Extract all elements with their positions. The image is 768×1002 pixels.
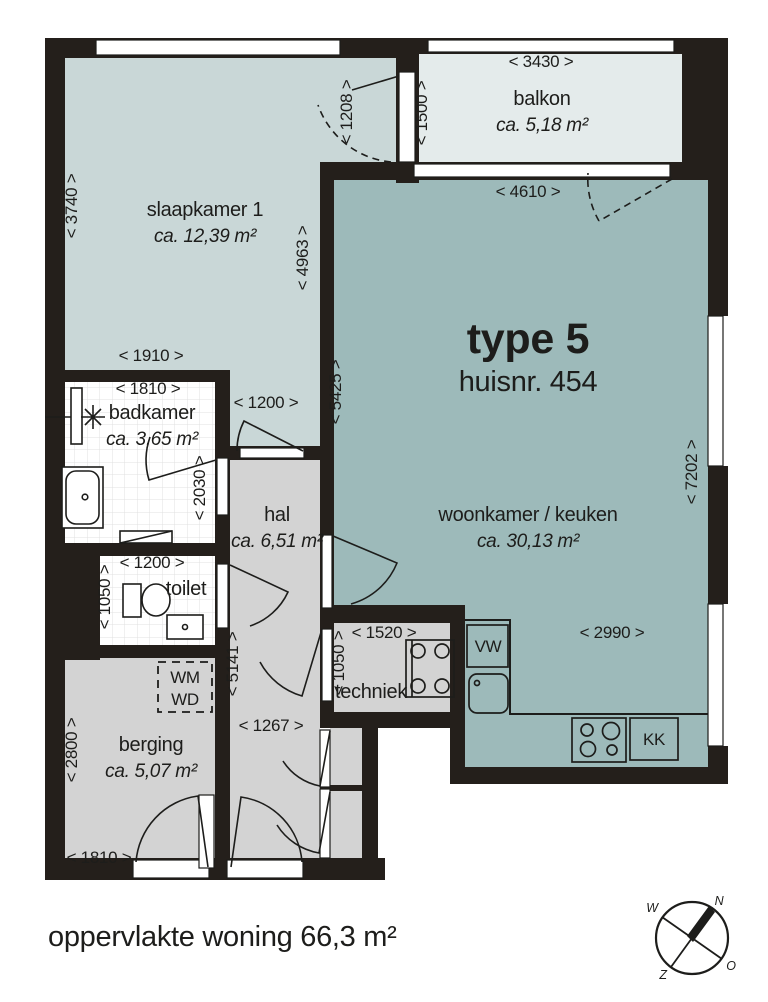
dimension-label: < 2990 > bbox=[580, 623, 645, 642]
dimension-label: < 5425 > bbox=[326, 359, 345, 424]
appliance-label: WD bbox=[171, 690, 199, 709]
dimension-label: < 1500 > bbox=[412, 80, 431, 145]
door-slaapkamer-hal bbox=[240, 448, 304, 458]
room-name-label: balkon bbox=[513, 88, 570, 110]
appliance-label: WM bbox=[170, 668, 200, 687]
room-berging bbox=[65, 658, 215, 860]
window-woonkamer-2 bbox=[708, 604, 723, 746]
room-area-label: ca. 12,39 m² bbox=[154, 226, 257, 247]
dimension-label: < 1910 > bbox=[119, 346, 184, 365]
dimension-label: < 2030 > bbox=[190, 455, 209, 520]
dimension-label: < 1810 > bbox=[116, 379, 181, 398]
compass-letter-south: Z bbox=[658, 968, 667, 982]
door-berging-exterior bbox=[133, 860, 209, 878]
plan-title: type 5 bbox=[467, 315, 589, 363]
compass-rose: NWOZ bbox=[646, 894, 736, 982]
room-area-label: ca. 5,07 m² bbox=[105, 761, 198, 782]
dimension-label: < 1200 > bbox=[120, 553, 185, 572]
window-woonkamer-1 bbox=[708, 316, 723, 466]
room-name-label: berging bbox=[119, 734, 184, 756]
room-name-label: hal bbox=[264, 504, 290, 526]
floorplan-svg: < 3740 >< 1910 >< 1208 >< 1500 >< 3430 >… bbox=[0, 0, 768, 1002]
compass-letter-west: W bbox=[646, 901, 659, 915]
door-woonkamer-balkon bbox=[414, 164, 670, 177]
appliance-label: KK bbox=[643, 730, 666, 749]
door-entrance bbox=[227, 860, 303, 878]
compass-letter-east: O bbox=[726, 959, 736, 973]
window-slaapkamer bbox=[96, 40, 340, 55]
door-badkamer bbox=[217, 458, 228, 515]
appliance-label: VW bbox=[475, 637, 502, 656]
dimension-label: < 1200 > bbox=[234, 393, 299, 412]
room-area-label: ca. 5,18 m² bbox=[496, 115, 589, 136]
compass-needle bbox=[687, 906, 715, 942]
balkon-railing bbox=[428, 40, 674, 52]
room-name-label: woonkamer / keuken bbox=[437, 504, 617, 526]
closet-1 bbox=[330, 728, 362, 789]
toilet-sink bbox=[167, 615, 203, 639]
door-toilet bbox=[217, 564, 228, 628]
room-area-label: ca. 3,65 m² bbox=[106, 429, 199, 450]
total-area-label: oppervlakte woning 66,3 m² bbox=[48, 921, 397, 953]
room-area-label: ca. 30,13 m² bbox=[477, 531, 580, 552]
dimension-label: < 1050 > bbox=[95, 564, 114, 629]
dimension-label: < 5141 > bbox=[223, 631, 242, 696]
room-name-label: badkamer bbox=[109, 402, 196, 424]
dimension-label: < 1267 > bbox=[239, 716, 304, 735]
door-hal-woonkamer bbox=[322, 535, 332, 608]
room-name-label: techniek bbox=[335, 681, 408, 703]
dimension-label: < 2800 > bbox=[62, 717, 81, 782]
radiator bbox=[71, 388, 82, 444]
closet-2 bbox=[330, 789, 362, 858]
room-name-label: slaapkamer 1 bbox=[147, 199, 264, 221]
compass-letter-north: N bbox=[715, 894, 725, 908]
plan-subtitle: huisnr. 454 bbox=[459, 366, 598, 398]
dimension-label: < 4610 > bbox=[496, 182, 561, 201]
toilet-tank bbox=[123, 584, 141, 617]
dimension-label: < 3740 > bbox=[62, 173, 81, 238]
room-area-label: ca. 6,51 m² bbox=[231, 531, 324, 552]
dimension-label: < 7202 > bbox=[682, 439, 701, 504]
room-name-label: toilet bbox=[166, 578, 207, 600]
dimension-label: < 1520 > bbox=[352, 623, 417, 642]
dimension-label: < 3430 > bbox=[509, 52, 574, 71]
dimension-label: < 1810 > bbox=[67, 848, 132, 867]
dimension-label: < 4963 > bbox=[293, 225, 312, 290]
dimension-label: < 1208 > bbox=[337, 79, 356, 144]
